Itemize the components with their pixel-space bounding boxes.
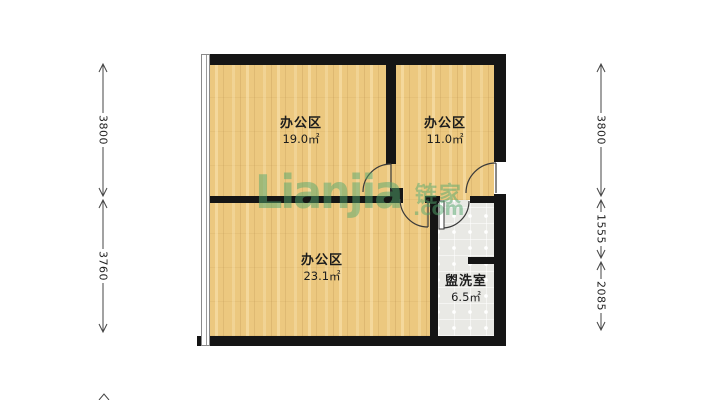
wall-right-upper bbox=[494, 54, 506, 162]
dimension-right-3800: 3800 bbox=[594, 113, 609, 147]
wall-top bbox=[210, 54, 506, 65]
dimension-line-left bbox=[99, 64, 107, 332]
dimension-left-3760: 3760 bbox=[96, 249, 111, 283]
wall-washroom-partition-stub bbox=[468, 257, 494, 264]
dimension-left-3800: 3800 bbox=[96, 113, 111, 147]
dimension-right-1555: 1555 bbox=[594, 212, 609, 246]
washroom-tile-floor bbox=[438, 200, 494, 336]
wall-door-jamb-stub bbox=[390, 188, 403, 203]
wall-right-lower bbox=[494, 194, 506, 346]
wall-washroom-left bbox=[430, 196, 438, 346]
wall-bottom bbox=[197, 336, 506, 346]
wall-mid-vertical bbox=[386, 64, 396, 164]
dimension-arrow-clipped-bottom bbox=[99, 394, 109, 400]
wall-mid-horizontal bbox=[209, 196, 403, 203]
dimension-right-2085: 2085 bbox=[594, 279, 609, 313]
window-left-facade bbox=[201, 54, 210, 346]
floorplan-canvas: 办公区 19.0㎡ 办公区 11.0㎡ 办公区 23.1㎡ 盥洗室 6.5㎡ 3… bbox=[0, 0, 710, 400]
wall-washroom-top-right bbox=[470, 196, 494, 203]
